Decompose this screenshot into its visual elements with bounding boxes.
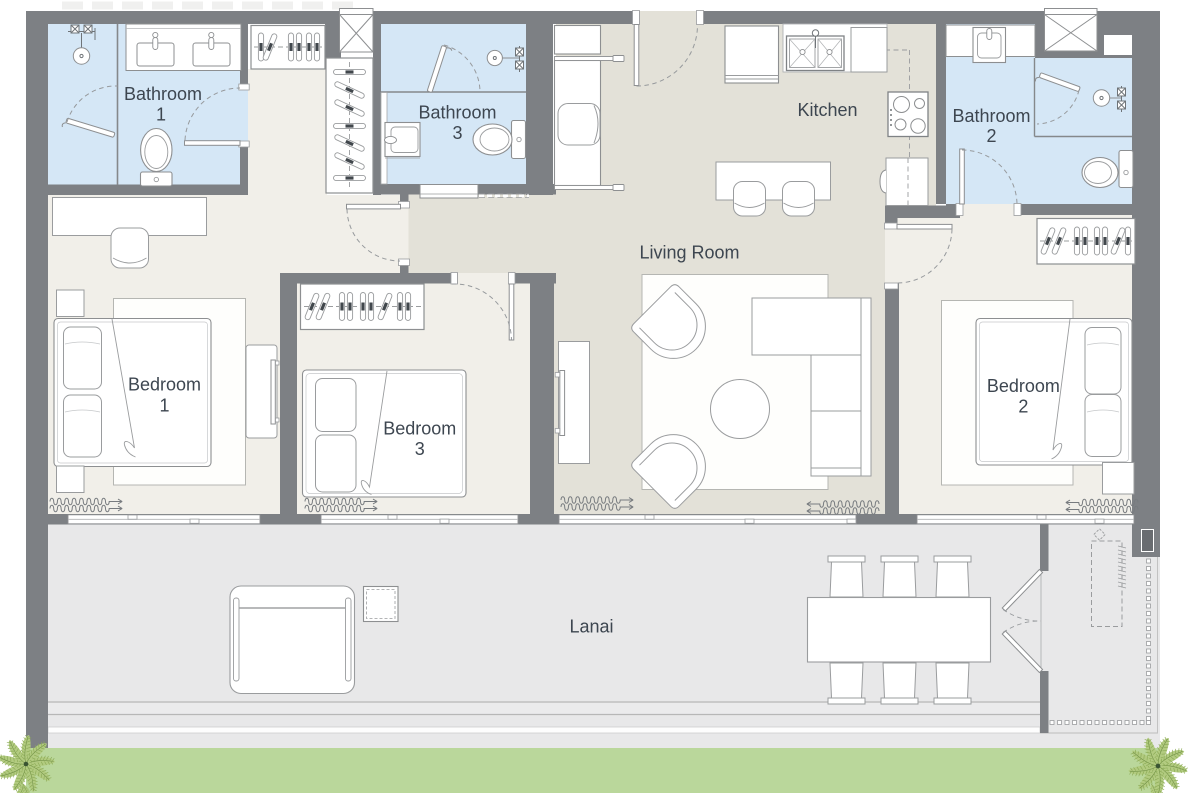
svg-text:1: 1 [159,396,169,416]
svg-text:2: 2 [986,126,996,146]
svg-text:2: 2 [1018,396,1028,416]
svg-text:Living Room: Living Room [639,243,739,263]
svg-text:Bathroom: Bathroom [124,84,202,104]
svg-text:Kitchen: Kitchen [797,100,857,120]
svg-text:Bedroom: Bedroom [128,374,201,394]
svg-text:Bathroom: Bathroom [952,106,1030,126]
svg-text:Bedroom: Bedroom [987,376,1060,396]
svg-text:1: 1 [156,104,166,124]
svg-text:3: 3 [415,439,425,459]
svg-text:Lanai: Lanai [569,617,613,637]
svg-text:Bedroom: Bedroom [383,419,456,439]
svg-text:3: 3 [452,123,462,143]
svg-text:Bathroom: Bathroom [418,103,496,123]
